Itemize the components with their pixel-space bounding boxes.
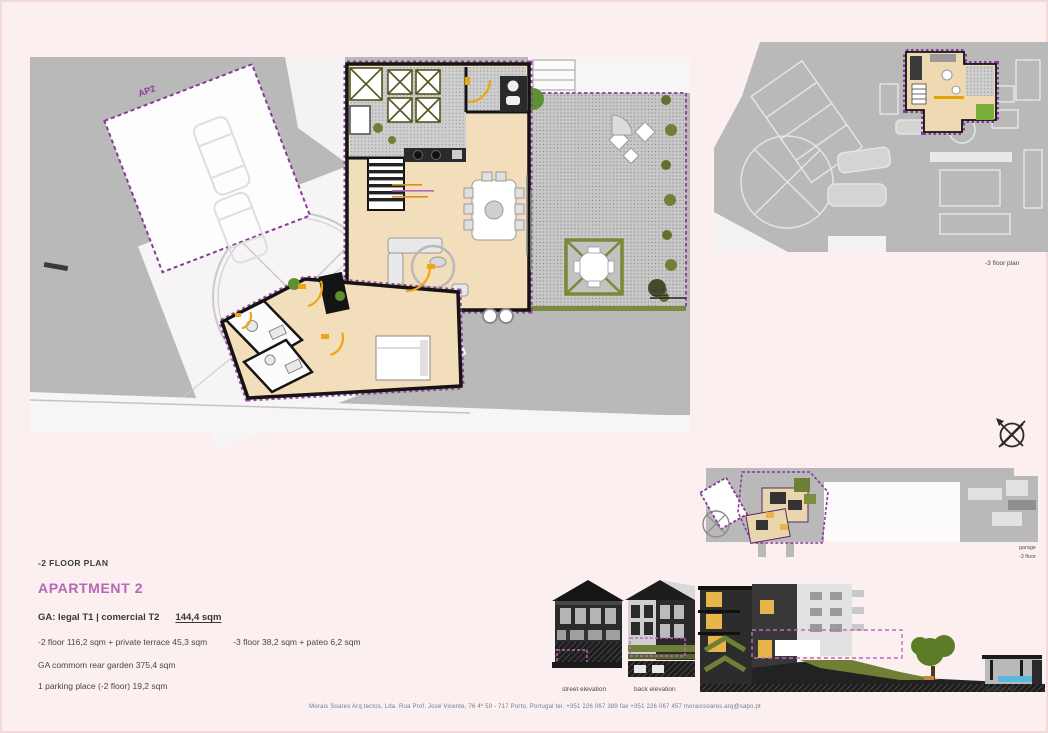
- bed: [376, 336, 430, 380]
- bathroom-top: [500, 76, 527, 112]
- caption-back-elevation: back elevation: [634, 686, 676, 693]
- section-aa: [698, 584, 1045, 692]
- minus3-floor-areas: -3 floor 38,2 sqm + pateo 6,2 sqm: [233, 637, 360, 647]
- section-cut-marker: sec AA: [652, 288, 668, 296]
- parking-line: 1 parking place (-2 floor) 19,2 sqm: [38, 681, 508, 691]
- main-floor-plan: [30, 57, 690, 450]
- garage-strip-plan: [700, 468, 1038, 557]
- ga-total-area: 144,4 sqm: [175, 612, 221, 623]
- caption-section-aa: section AA: [985, 686, 1016, 693]
- gross-area-line: GA: legal T1 | comercial T2144,4 sqm: [38, 612, 508, 623]
- apartment-title: APARTMENT 2: [38, 580, 508, 596]
- apartment-info-block: -2 FLOOR PLAN APARTMENT 2 GA: legal T1 |…: [38, 558, 508, 691]
- dining-table: [464, 172, 524, 240]
- minus2-floor-areas: -2 floor 116,2 sqm + private terrace 45,…: [38, 637, 207, 647]
- ga-label: GA: legal T1 | comercial T2: [38, 612, 159, 623]
- pool-deck: [982, 655, 1042, 684]
- caption-strip-line2: -3 floor: [990, 554, 1036, 560]
- tree: [911, 635, 955, 680]
- north-arrow-icon: [996, 418, 1025, 447]
- site-plan-minus3: [714, 42, 1048, 252]
- floor-plan-title: -2 FLOOR PLAN: [38, 558, 508, 568]
- elevations-group: [552, 580, 1045, 692]
- back-elevation: [625, 580, 695, 677]
- street-elevation: [552, 580, 624, 668]
- skylight: [566, 240, 622, 294]
- garden-area-line: GA commom rear garden 375,4 sqm: [38, 660, 508, 670]
- caption-street-elevation: street elevation: [562, 686, 606, 693]
- architect-footer: Morais Soares Arq.tectos, Lda. Rua Prof.…: [255, 704, 815, 710]
- floor-areas-line: -2 floor 116,2 sqm + private terrace 45,…: [38, 637, 508, 647]
- caption-minus3-floor-plan: -3 floor plan: [985, 260, 1019, 267]
- caption-strip-line1: garage: [990, 545, 1036, 551]
